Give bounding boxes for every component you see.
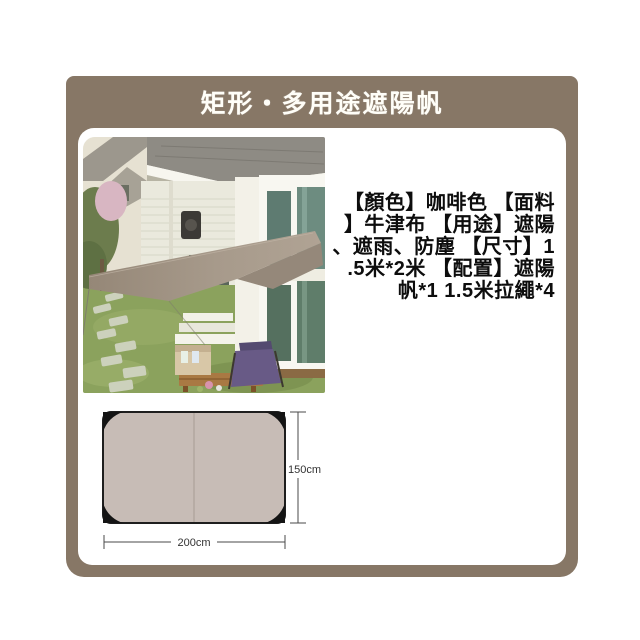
product-panel: 矩形・多用途遮陽帆 bbox=[66, 76, 578, 577]
description-line: 】牛津布 【用途】遮陽 bbox=[323, 214, 555, 236]
height-label: 150cm bbox=[288, 464, 321, 476]
photo-scene bbox=[83, 137, 325, 393]
product-description: 【顏色】咖啡色 【面料 】牛津布 【用途】遮陽 、遮雨、防塵 【尺寸】1 .5米… bbox=[323, 192, 555, 302]
description-line: 【顏色】咖啡色 【面料 bbox=[323, 192, 555, 214]
product-page: 矩形・多用途遮陽帆 bbox=[0, 0, 640, 640]
description-line: 、遮雨、防塵 【尺寸】1 bbox=[323, 236, 555, 258]
dimension-diagram: 150cm 200cm bbox=[89, 400, 339, 550]
product-photo bbox=[83, 137, 325, 393]
description-line: .5米*2米 【配置】遮陽 bbox=[323, 258, 555, 280]
storage-box bbox=[175, 345, 211, 375]
header: 矩形・多用途遮陽帆 bbox=[66, 76, 578, 128]
description-line: 帆*1 1.5米拉繩*4 bbox=[323, 280, 555, 302]
page-title: 矩形・多用途遮陽帆 bbox=[200, 84, 443, 120]
content-card: 【顏色】咖啡色 【面料 】牛津布 【用途】遮陽 、遮雨、防塵 【尺寸】1 .5米… bbox=[78, 128, 566, 565]
width-label: 200cm bbox=[177, 537, 210, 549]
